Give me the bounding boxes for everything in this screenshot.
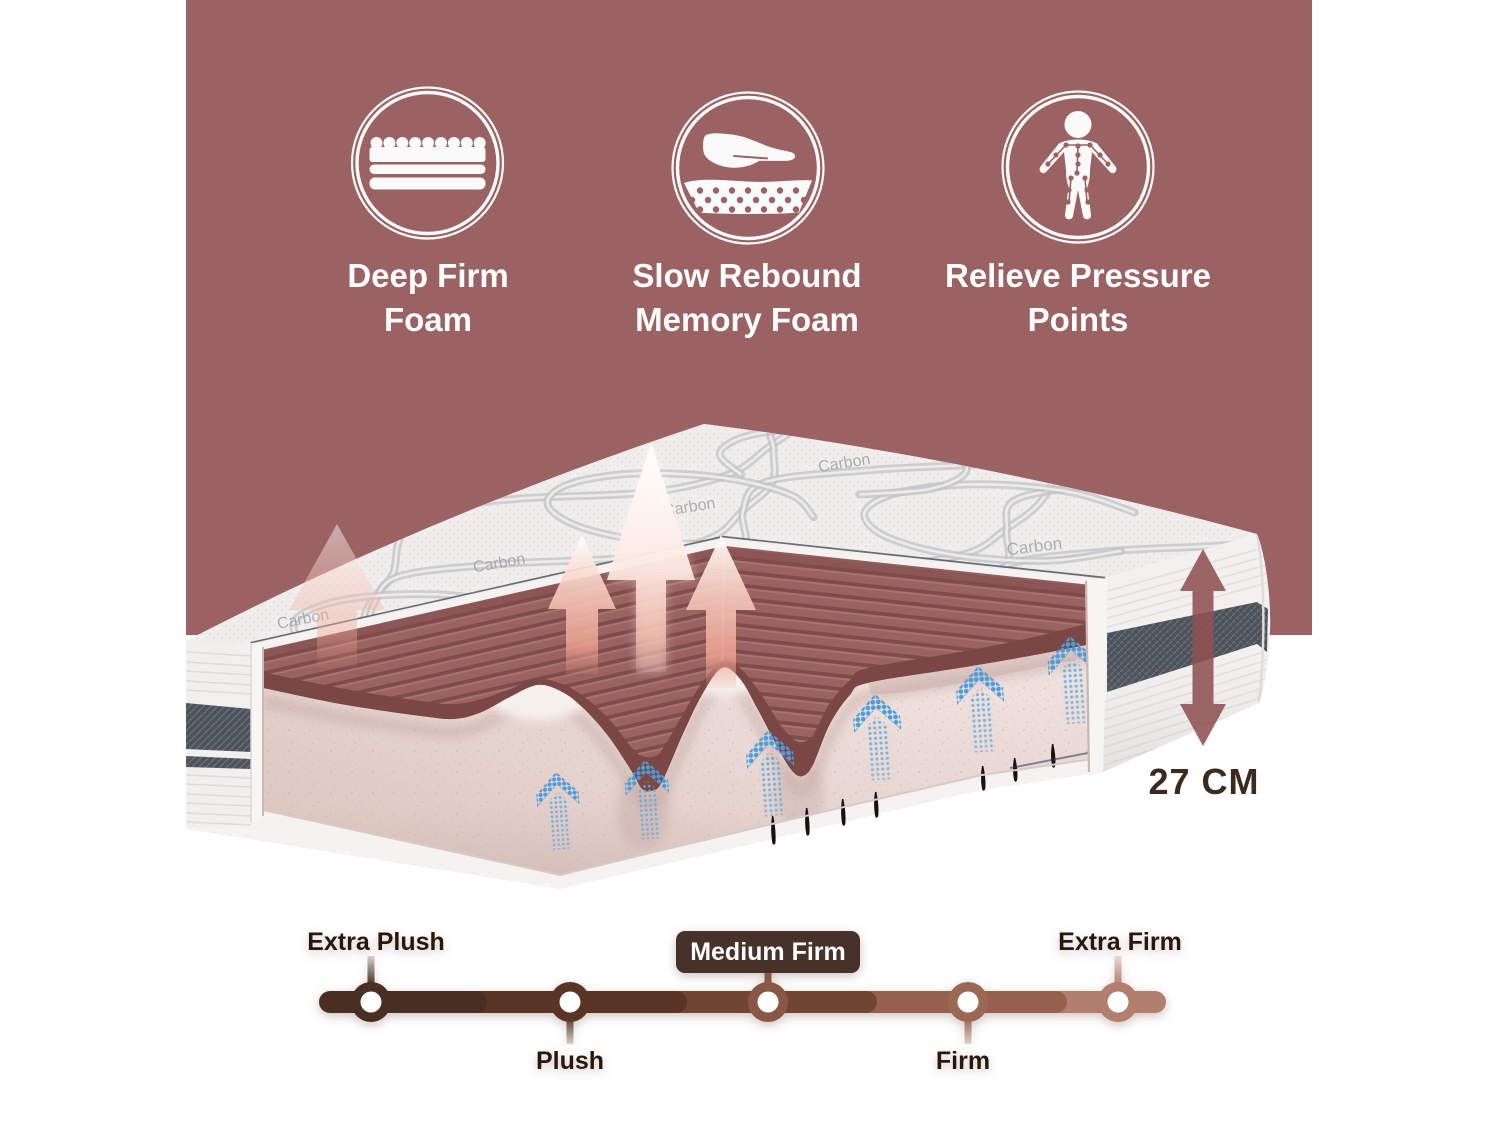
svg-text:Deep Firm: Deep Firm: [347, 257, 508, 294]
svg-text:Relieve Pressure: Relieve Pressure: [945, 257, 1211, 294]
svg-text:Memory Foam: Memory Foam: [635, 301, 859, 338]
svg-text:Extra Firm: Extra Firm: [1058, 928, 1182, 956]
svg-text:Plush: Plush: [536, 1047, 604, 1075]
svg-text:Firm: Firm: [936, 1047, 990, 1075]
svg-text:Foam: Foam: [384, 301, 472, 338]
svg-text:Extra Plush: Extra Plush: [307, 928, 445, 956]
svg-text:Medium Firm: Medium Firm: [690, 938, 846, 966]
svg-text:Slow Rebound: Slow Rebound: [632, 257, 861, 294]
svg-text:27 CM: 27 CM: [1148, 761, 1259, 802]
svg-text:Points: Points: [1028, 301, 1129, 338]
